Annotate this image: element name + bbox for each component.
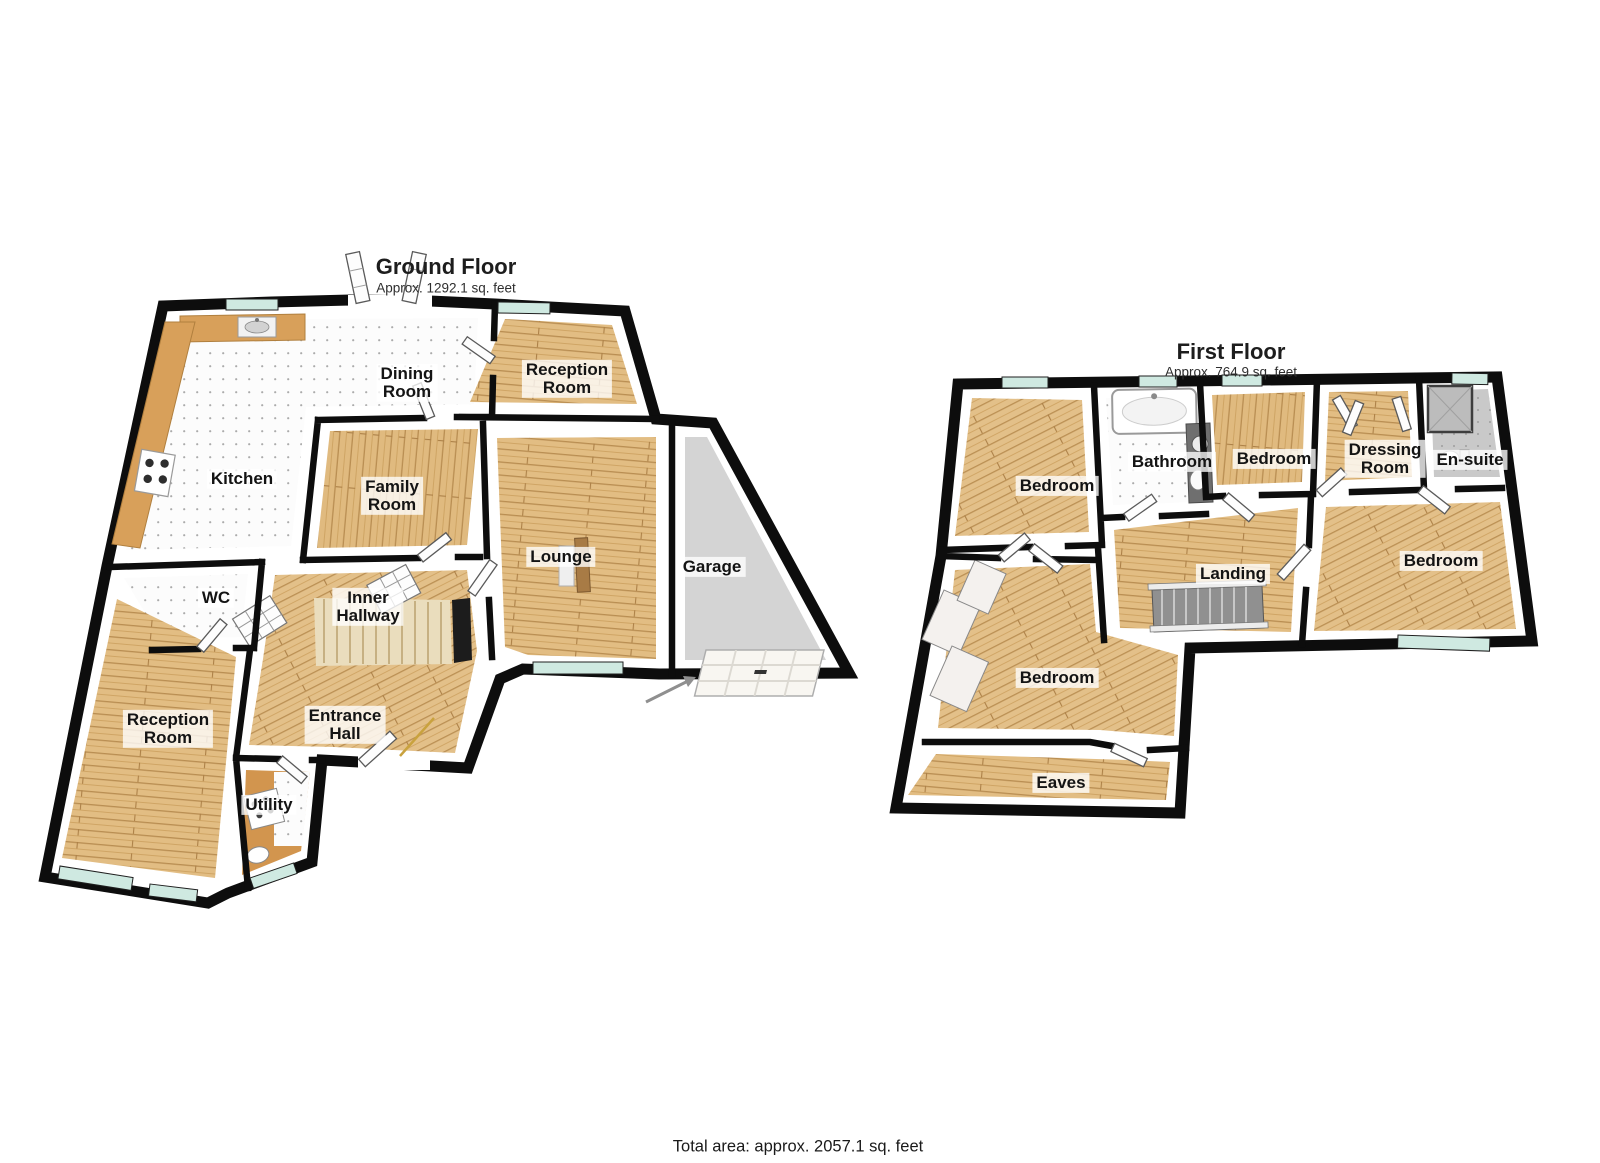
- total-area-text: Total area: approx. 2057.1 sq. feet: [673, 1138, 923, 1157]
- room-label-reception-room-top: Reception Room: [522, 360, 612, 398]
- room-label-reception-room-bottom: Reception Room: [123, 710, 213, 748]
- ground-floor-area: Approx. 1292.1 sq. feet: [376, 281, 516, 296]
- garage-door: [695, 650, 824, 696]
- floor-plan-page: Ground Floor Approx. 1292.1 sq. feet Fir…: [0, 0, 1600, 1163]
- room-label-kitchen: Kitchen: [207, 469, 277, 489]
- room-floor-bedroom-tl: [955, 398, 1089, 536]
- first-floor-title: First Floor: [1177, 339, 1286, 365]
- stove: [134, 449, 175, 496]
- room-label-bedroom-top-mid: Bedroom: [1233, 449, 1316, 469]
- room-label-bedroom-top-left: Bedroom: [1016, 476, 1099, 496]
- driveway-arrow: [646, 680, 690, 702]
- room-label-garage: Garage: [679, 557, 746, 577]
- shower: [1428, 386, 1472, 432]
- room-label-family-room: Family Room: [361, 477, 423, 515]
- room-label-lounge: Lounge: [526, 547, 595, 567]
- room-label-inner-hallway: Inner Hallway: [332, 588, 403, 626]
- room-label-entrance-hall: Entrance Hall: [305, 706, 386, 744]
- room-label-wc: WC: [198, 588, 234, 608]
- floor-plan-svg: [0, 0, 1600, 1163]
- room-floor-garage: [685, 437, 826, 660]
- first-floor-area: Approx. 764.9 sq. feet: [1165, 365, 1297, 380]
- room-label-dining-room: Dining Room: [377, 364, 438, 402]
- room-label-bathroom: Bathroom: [1128, 452, 1216, 472]
- ground-floor-plan: [45, 252, 849, 903]
- room-label-landing: Landing: [1196, 564, 1270, 584]
- room-label-en-suite: En-suite: [1432, 450, 1507, 470]
- stairwell-banister: [1148, 580, 1268, 632]
- room-label-bedroom-right: Bedroom: [1400, 551, 1483, 571]
- room-label-utility: Utility: [241, 795, 296, 815]
- room-label-eaves: Eaves: [1032, 773, 1089, 793]
- room-label-dressing-room: Dressing Room: [1345, 440, 1426, 478]
- bathtub: [1112, 389, 1197, 434]
- room-floor-bedroom-tm: [1212, 392, 1305, 485]
- first-floor-plan: [896, 373, 1532, 813]
- ground-floor-title: Ground Floor: [376, 254, 517, 280]
- room-label-bedroom-lower-left: Bedroom: [1016, 668, 1099, 688]
